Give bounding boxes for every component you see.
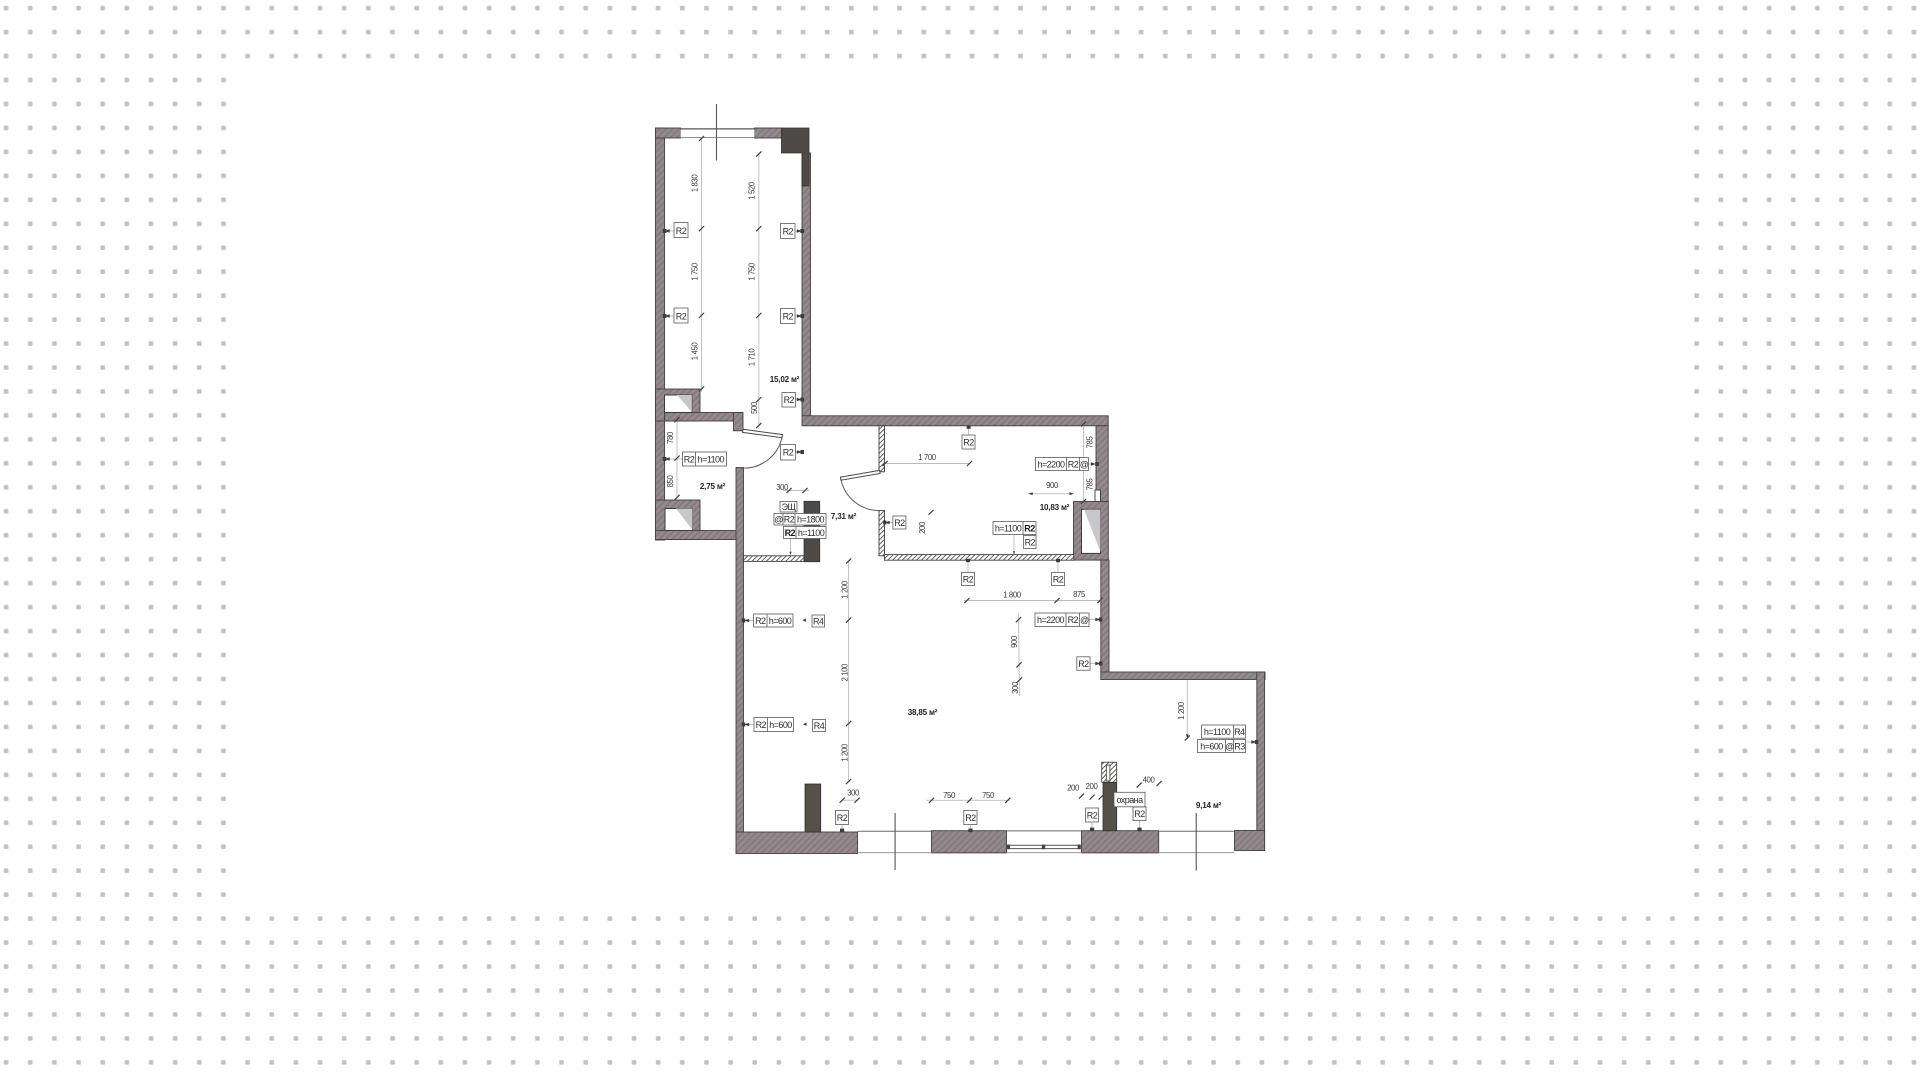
svg-text:1 200: 1 200 — [841, 580, 850, 599]
svg-text:780: 780 — [666, 431, 675, 444]
svg-text:R2: R2 — [684, 454, 695, 464]
svg-text:h=1100: h=1100 — [798, 528, 825, 538]
svg-text:1 450: 1 450 — [691, 342, 700, 361]
svg-text:500: 500 — [750, 401, 759, 414]
svg-text:1 710: 1 710 — [748, 348, 757, 367]
svg-text:1 700: 1 700 — [918, 453, 937, 462]
svg-text:1 750: 1 750 — [691, 262, 700, 281]
svg-text:R2: R2 — [894, 518, 905, 528]
svg-text:850: 850 — [666, 475, 675, 488]
svg-text:200: 200 — [1086, 782, 1099, 791]
svg-text:875: 875 — [1073, 590, 1086, 599]
svg-text:R2: R2 — [1134, 809, 1145, 819]
svg-text:7,31 м²: 7,31 м² — [831, 512, 857, 521]
svg-text:9,14 м²: 9,14 м² — [1196, 801, 1222, 810]
svg-text:R2: R2 — [1068, 459, 1079, 469]
svg-text:900: 900 — [1046, 481, 1059, 490]
svg-text:R4: R4 — [813, 616, 824, 626]
svg-text:R2: R2 — [784, 395, 795, 405]
svg-text:R2: R2 — [1025, 537, 1036, 547]
svg-text:2,75 м²: 2,75 м² — [700, 482, 726, 491]
svg-text:1 800: 1 800 — [1003, 591, 1022, 600]
svg-text:h=600: h=600 — [769, 720, 792, 730]
svg-text:200: 200 — [918, 521, 927, 534]
svg-text:750: 750 — [982, 791, 995, 800]
svg-text:h=2200: h=2200 — [1037, 615, 1065, 625]
svg-text:@: @ — [1225, 741, 1234, 751]
svg-text:@: @ — [1080, 615, 1089, 625]
svg-text:2 100: 2 100 — [841, 663, 850, 682]
svg-text:R2: R2 — [783, 448, 794, 458]
svg-text:h=1100: h=1100 — [1204, 727, 1231, 737]
svg-text:300: 300 — [776, 483, 789, 492]
svg-text:h=1800: h=1800 — [797, 515, 825, 525]
svg-text:R2: R2 — [1068, 615, 1079, 625]
svg-text:R2: R2 — [783, 227, 794, 237]
svg-text:R2: R2 — [756, 720, 767, 730]
svg-text:ЭЩ: ЭЩ — [782, 502, 797, 512]
svg-text:@: @ — [1080, 459, 1089, 469]
svg-text:200: 200 — [1067, 784, 1080, 793]
svg-text:R4: R4 — [1234, 727, 1245, 737]
svg-text:R4: R4 — [814, 721, 825, 731]
svg-text:785: 785 — [1086, 478, 1095, 491]
svg-text:R2: R2 — [784, 515, 795, 525]
svg-text:750: 750 — [943, 791, 956, 800]
svg-text:h=600: h=600 — [769, 616, 792, 626]
svg-text:R2: R2 — [1078, 659, 1089, 669]
svg-text:h=600: h=600 — [1200, 741, 1223, 751]
svg-text:300: 300 — [847, 789, 860, 798]
svg-text:900: 900 — [1010, 635, 1019, 648]
svg-text:1 200: 1 200 — [1177, 701, 1186, 720]
svg-text:1 830: 1 830 — [691, 174, 700, 193]
svg-text:R2: R2 — [965, 813, 976, 823]
svg-text:@: @ — [774, 515, 783, 525]
svg-text:R2: R2 — [1053, 574, 1064, 584]
svg-text:1 750: 1 750 — [748, 262, 757, 281]
svg-text:R3: R3 — [1234, 741, 1245, 751]
svg-text:h=2200: h=2200 — [1038, 459, 1066, 469]
svg-text:h=1100: h=1100 — [995, 523, 1022, 533]
svg-text:R2: R2 — [783, 312, 794, 322]
svg-text:R2: R2 — [755, 616, 766, 626]
svg-text:R2: R2 — [785, 528, 796, 538]
svg-text:h=1100: h=1100 — [698, 454, 725, 464]
svg-text:R2: R2 — [676, 312, 687, 322]
svg-text:R2: R2 — [676, 226, 687, 236]
svg-text:15,02 м²: 15,02 м² — [770, 375, 800, 384]
svg-text:300: 300 — [1011, 681, 1020, 694]
svg-text:1 520: 1 520 — [748, 181, 757, 200]
svg-text:10,83 м²: 10,83 м² — [1040, 503, 1070, 512]
svg-text:400: 400 — [1143, 776, 1156, 785]
svg-text:R2: R2 — [963, 437, 974, 447]
svg-text:R2: R2 — [1087, 810, 1098, 820]
svg-text:R2: R2 — [837, 813, 848, 823]
svg-text:R2: R2 — [1024, 523, 1035, 533]
svg-text:1 200: 1 200 — [841, 743, 850, 762]
svg-text:R2: R2 — [963, 574, 974, 584]
svg-text:38,85 м²: 38,85 м² — [908, 708, 938, 717]
svg-text:охрана: охрана — [1116, 795, 1143, 805]
svg-text:785: 785 — [1086, 436, 1095, 449]
